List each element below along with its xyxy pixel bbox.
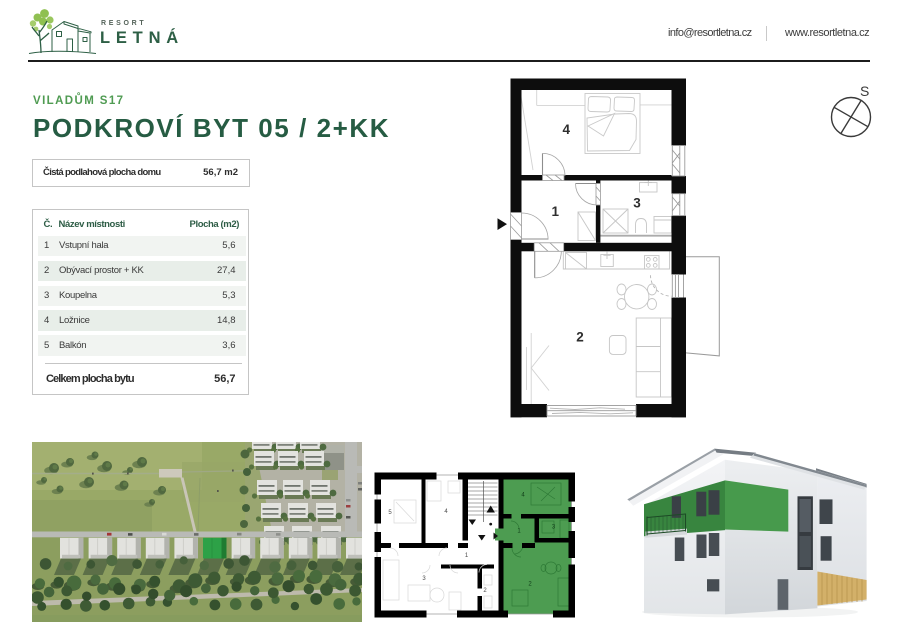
svg-text:S: S <box>860 83 869 99</box>
svg-text:1: 1 <box>552 204 560 219</box>
svg-text:2: 2 <box>483 588 487 594</box>
svg-text:3: 3 <box>633 195 641 210</box>
svg-text:5: 5 <box>388 510 392 516</box>
svg-text:3: 3 <box>422 576 426 582</box>
svg-text:4: 4 <box>444 509 448 515</box>
svg-text:4: 4 <box>562 122 570 137</box>
svg-text:1: 1 <box>465 553 469 559</box>
svg-text:2: 2 <box>576 329 584 344</box>
